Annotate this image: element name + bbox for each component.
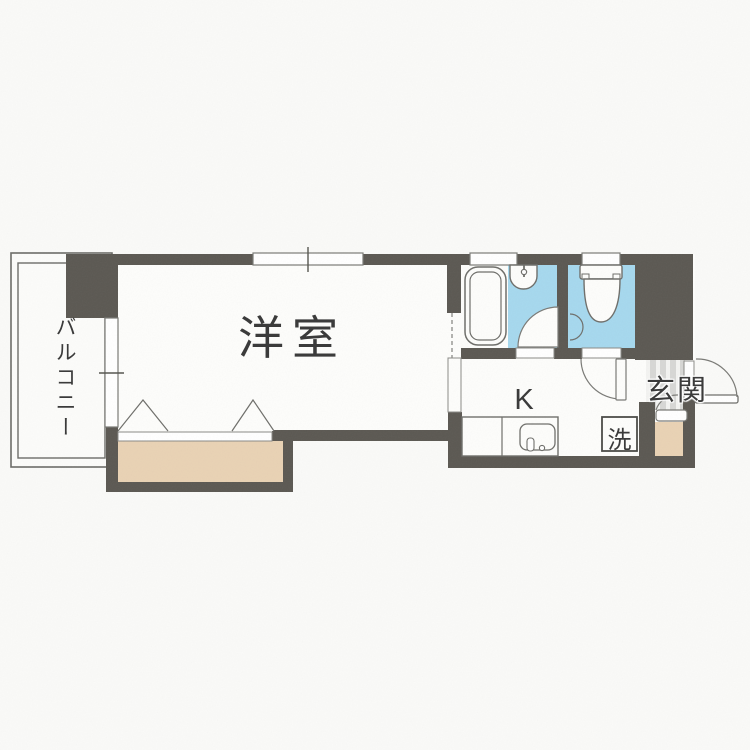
entrance-label: 玄関 (635, 367, 719, 409)
western-room-label: 洋室 (212, 302, 372, 368)
kitchen-label: K (504, 384, 544, 417)
laundry-label: 洗 (602, 420, 637, 455)
floor-plan-page: バルコニー 洋室 K 玄関 洗 (0, 0, 750, 750)
balcony-label: バルコニー (49, 316, 79, 461)
